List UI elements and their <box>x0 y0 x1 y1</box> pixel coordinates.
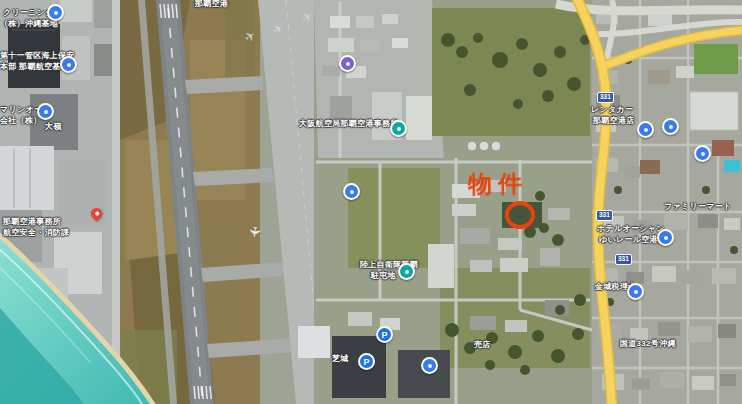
satellite-map-view[interactable]: ✈ ✈ ✈ ✈ クリーニング （株）沖縄基地 第十一管区海上保安 本部 那覇航空… <box>0 0 742 404</box>
transit-pin-icon[interactable] <box>662 118 679 135</box>
poi-label-jsdf[interactable]: 駐屯地 <box>371 272 396 280</box>
airplane-icon: ✈ <box>246 225 263 239</box>
poi-label-aviation-bureau[interactable]: 大阪航空局那覇空港事務所 <box>299 120 399 128</box>
map-pin-icon[interactable] <box>37 103 54 120</box>
map-pin-icon[interactable] <box>390 120 407 137</box>
poi-label-hotel[interactable]: ホテルオーシャン <box>597 225 665 233</box>
map-pin-icon[interactable] <box>398 263 415 280</box>
annotation-text: 物件 <box>468 167 529 200</box>
map-pin-icon[interactable] <box>339 55 356 72</box>
map-pin-icon[interactable] <box>657 229 674 246</box>
poi-label-rentacar[interactable]: レンタカー <box>591 106 633 114</box>
lodging-pin-icon[interactable] <box>627 283 644 300</box>
place-label-shibagusuku[interactable]: 芝城 <box>332 355 349 363</box>
map-pin-icon[interactable] <box>47 4 64 21</box>
place-label-omine[interactable]: 大嶺 <box>45 123 62 131</box>
route-shield: 331 <box>597 92 614 103</box>
poi-label-airport-office[interactable]: 那覇空港事務所 <box>3 218 61 226</box>
poi-label-airport-office[interactable]: 航空安全・消防課 <box>3 229 69 237</box>
place-label-naha-airport[interactable]: 那覇空港 <box>195 0 228 8</box>
map-pin-icon[interactable] <box>60 56 77 73</box>
transit-pin-icon[interactable] <box>637 121 654 138</box>
map-pin-icon[interactable] <box>694 145 711 162</box>
poi-label-shop[interactable]: 売店 <box>474 341 491 349</box>
poi-label[interactable]: （株）沖縄基地 <box>0 20 58 28</box>
parking-icon[interactable]: P <box>358 353 375 370</box>
route-shield: 331 <box>596 210 613 221</box>
annotation-circle <box>505 201 535 229</box>
poi-label-store[interactable]: ファミリーマート <box>664 203 732 211</box>
poi-label-rentacar[interactable]: 那覇空港店 <box>593 117 635 125</box>
poi-label[interactable]: 会社（株） <box>0 117 42 125</box>
route-shield: 331 <box>615 254 632 265</box>
map-pin-icon[interactable] <box>421 357 438 374</box>
poi-label-coast-guard[interactable]: 本部 那覇航空基地 <box>0 63 69 71</box>
road-label-route332[interactable]: 国道332号沖縄 <box>620 340 676 348</box>
parking-icon[interactable]: P <box>376 326 393 343</box>
map-pin-icon[interactable] <box>343 183 360 200</box>
